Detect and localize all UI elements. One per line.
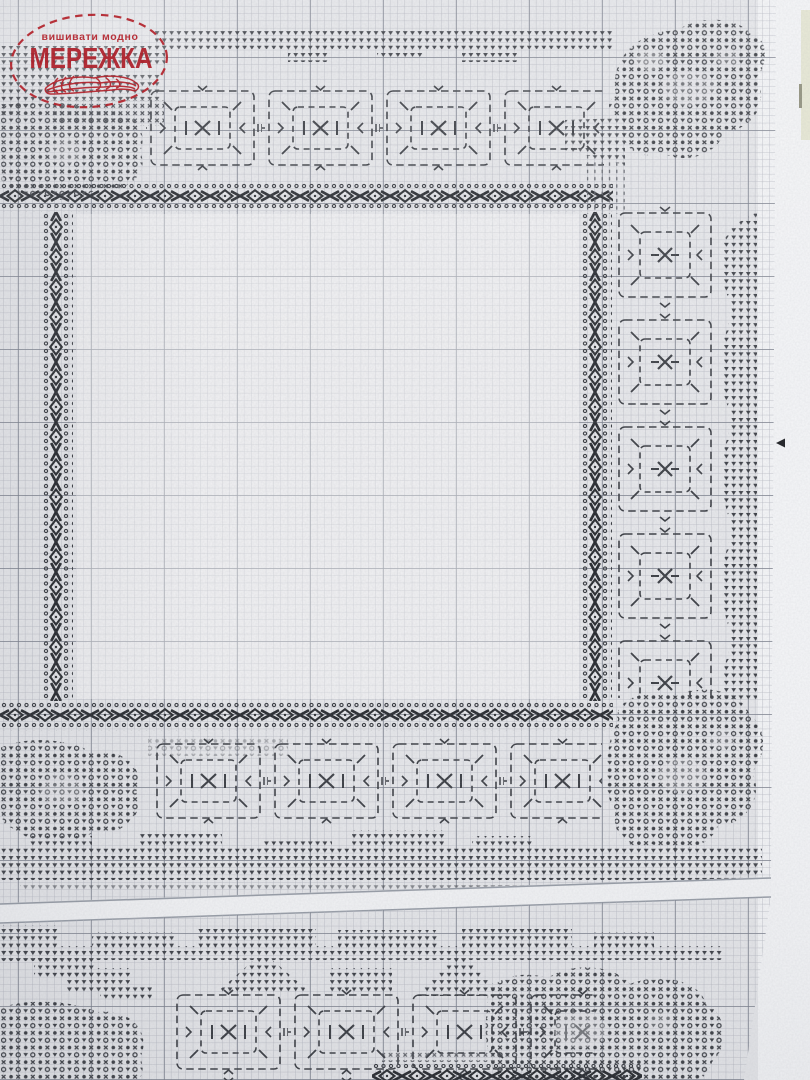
svg-text:МЕРЕЖКА: МЕРЕЖКА (30, 43, 153, 75)
svg-text:вишивати модно: вишивати модно (42, 32, 139, 43)
